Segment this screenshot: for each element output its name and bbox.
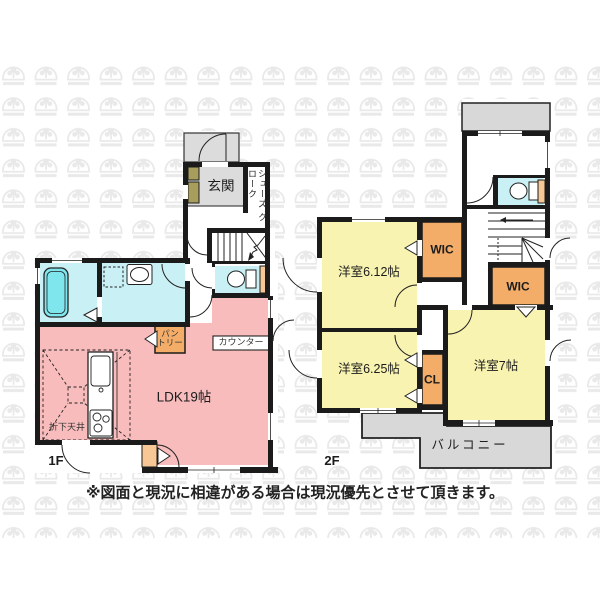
label-floor-1f: 1F [48,454,63,468]
disclaimer-text: ※図面と現況に相違がある場合は現況優先とさせて頂きます。 [86,482,504,503]
kitchen-counter-icon [88,352,117,438]
label-bedroom-612: 洋室6.12帖 [338,266,400,280]
label-bedroom-625: 洋室6.25帖 [338,363,400,377]
label-lowered-ceiling: 折下天井 [49,423,85,433]
label-balcony: バルコニー [431,439,508,453]
label-ldk: LDK19帖 [157,391,212,406]
label-bedroom-7: 洋室7帖 [474,360,518,374]
floorplan-page: 玄関 シューズ クローク LDK19帖 パン トリー カウンター 折下天井 1F… [0,0,600,600]
toilet-2f-shelf [538,180,545,203]
label-shoes-cloak: シューズ クローク [247,169,267,231]
label-counter: カウンター [218,338,263,348]
label-floor-2f: 2F [324,454,339,468]
label-closet-cl: CL [424,373,440,386]
label-wic-b: WIC [506,280,529,293]
floor-plan-graphic [0,0,600,600]
label-genkan: 玄関 [208,180,235,195]
shoe-cabinet [188,167,199,203]
label-pantry: パン トリー [157,330,183,349]
label-wic-a: WIC [430,243,453,256]
